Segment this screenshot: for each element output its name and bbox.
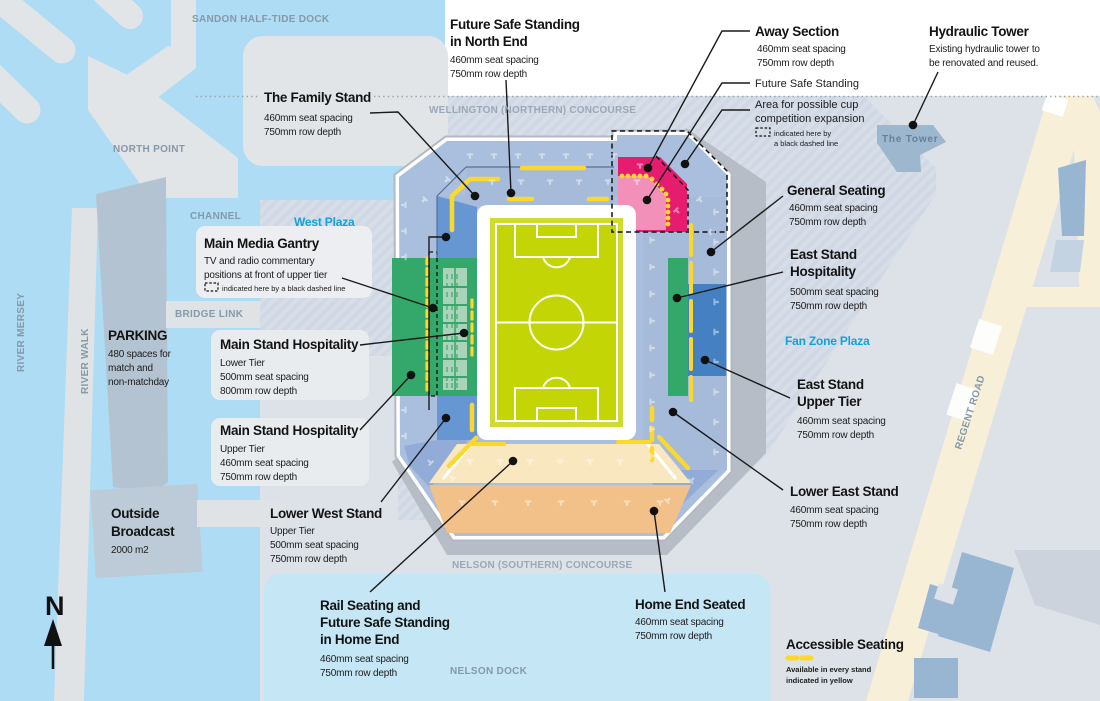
svg-text:750mm row depth: 750mm row depth	[635, 631, 712, 642]
svg-text:Fan Zone Plaza: Fan Zone Plaza	[785, 334, 870, 348]
svg-text:Lower Tier: Lower Tier	[220, 358, 266, 369]
svg-text:SANDON HALF-TIDE DOCK: SANDON HALF-TIDE DOCK	[192, 14, 330, 25]
svg-text:2000 m2: 2000 m2	[111, 545, 149, 556]
svg-text:East Stand: East Stand	[797, 377, 864, 392]
svg-text:PARKING: PARKING	[108, 328, 167, 343]
svg-text:The Family Stand: The Family Stand	[264, 90, 371, 105]
svg-text:NELSON (SOUTHERN) CONCOURSE: NELSON (SOUTHERN) CONCOURSE	[452, 560, 633, 571]
svg-text:indicated here by a black dash: indicated here by a black dashed line	[222, 284, 345, 293]
svg-text:Hospitality: Hospitality	[790, 264, 857, 279]
svg-text:Accessible Seating: Accessible Seating	[786, 637, 904, 652]
svg-text:Main Stand Hospitality: Main Stand Hospitality	[220, 337, 359, 352]
svg-text:Broadcast: Broadcast	[111, 524, 175, 539]
svg-text:RIVER WALK: RIVER WALK	[80, 328, 91, 394]
svg-text:Rail Seating and: Rail Seating and	[320, 598, 420, 613]
svg-text:be renovated and reused.: be renovated and reused.	[929, 58, 1038, 69]
svg-text:750mm row depth: 750mm row depth	[790, 301, 867, 312]
svg-text:in Home End: in Home End	[320, 632, 399, 647]
svg-text:indicated in yellow: indicated in yellow	[786, 676, 853, 685]
svg-text:match and: match and	[108, 363, 153, 374]
svg-text:Future Safe Standing: Future Safe Standing	[755, 78, 859, 90]
svg-text:460mm seat spacing: 460mm seat spacing	[320, 654, 409, 665]
svg-text:TV and radio commentary: TV and radio commentary	[204, 256, 315, 267]
svg-text:Away Section: Away Section	[755, 24, 839, 39]
svg-text:750mm row depth: 750mm row depth	[264, 127, 341, 138]
svg-text:Upper Tier: Upper Tier	[220, 444, 266, 455]
svg-text:Future Safe Standing: Future Safe Standing	[320, 615, 450, 630]
svg-text:750mm row depth: 750mm row depth	[789, 217, 866, 228]
svg-text:Area for possible cup: Area for possible cup	[755, 99, 858, 111]
svg-text:CHANNEL: CHANNEL	[190, 211, 241, 222]
svg-text:NORTH POINT: NORTH POINT	[113, 144, 185, 155]
svg-text:Existing hydraulic tower to: Existing hydraulic tower to	[929, 44, 1040, 55]
svg-text:Hydraulic Tower: Hydraulic Tower	[929, 24, 1030, 39]
svg-text:750mm row depth: 750mm row depth	[320, 668, 397, 679]
svg-text:460mm seat spacing: 460mm seat spacing	[797, 416, 886, 427]
svg-text:East Stand: East Stand	[790, 247, 857, 262]
svg-text:Lower West Stand: Lower West Stand	[270, 506, 382, 521]
svg-text:a black dashed line: a black dashed line	[774, 139, 838, 148]
svg-text:750mm row depth: 750mm row depth	[797, 430, 874, 441]
svg-text:Upper Tier: Upper Tier	[270, 526, 316, 537]
svg-text:Lower East Stand: Lower East Stand	[790, 484, 899, 499]
svg-text:Upper Tier: Upper Tier	[797, 394, 862, 409]
svg-text:N: N	[45, 591, 65, 621]
svg-text:460mm seat spacing: 460mm seat spacing	[264, 113, 353, 124]
svg-text:positions at front of upper ti: positions at front of upper tier	[204, 270, 328, 281]
svg-text:General Seating: General Seating	[787, 183, 885, 198]
svg-text:NELSON DOCK: NELSON DOCK	[450, 666, 528, 677]
svg-text:750mm row depth: 750mm row depth	[220, 472, 297, 483]
svg-text:750mm row depth: 750mm row depth	[757, 58, 834, 69]
svg-text:500mm seat spacing: 500mm seat spacing	[270, 540, 359, 551]
svg-text:indicated here by: indicated here by	[774, 129, 831, 138]
svg-text:750mm row depth: 750mm row depth	[790, 519, 867, 530]
svg-text:Home End Seated: Home End Seated	[635, 597, 745, 612]
svg-text:WELLINGTON (NORTHERN) CONCOURS: WELLINGTON (NORTHERN) CONCOURSE	[429, 105, 636, 116]
svg-text:Available in every stand: Available in every stand	[786, 665, 872, 674]
svg-text:460mm seat spacing: 460mm seat spacing	[220, 458, 309, 469]
svg-text:competition expansion: competition expansion	[755, 113, 864, 125]
svg-text:750mm row depth: 750mm row depth	[270, 554, 347, 565]
svg-text:460mm seat spacing: 460mm seat spacing	[789, 203, 878, 214]
svg-text:in North End: in North End	[450, 34, 527, 49]
svg-text:non-matchday: non-matchday	[108, 377, 169, 388]
svg-text:500mm seat spacing: 500mm seat spacing	[220, 372, 309, 383]
svg-text:750mm row depth: 750mm row depth	[450, 69, 527, 80]
svg-text:800mm row depth: 800mm row depth	[220, 386, 297, 397]
svg-text:460mm seat spacing: 460mm seat spacing	[450, 55, 539, 66]
svg-text:460mm seat spacing: 460mm seat spacing	[757, 44, 846, 55]
svg-text:480 spaces for: 480 spaces for	[108, 349, 172, 360]
svg-text:Main Media Gantry: Main Media Gantry	[204, 236, 320, 251]
svg-text:Outside: Outside	[111, 506, 160, 521]
svg-text:West Plaza: West Plaza	[294, 215, 355, 229]
svg-text:BRIDGE LINK: BRIDGE LINK	[175, 309, 244, 320]
svg-text:The Tower: The Tower	[882, 134, 938, 145]
svg-text:460mm seat spacing: 460mm seat spacing	[790, 505, 879, 516]
svg-text:RIVER MERSEY: RIVER MERSEY	[16, 293, 27, 372]
svg-text:Future Safe Standing: Future Safe Standing	[450, 17, 580, 32]
svg-text:460mm seat spacing: 460mm seat spacing	[635, 617, 724, 628]
svg-text:500mm seat spacing: 500mm seat spacing	[790, 287, 879, 298]
svg-text:Main Stand Hospitality: Main Stand Hospitality	[220, 423, 359, 438]
